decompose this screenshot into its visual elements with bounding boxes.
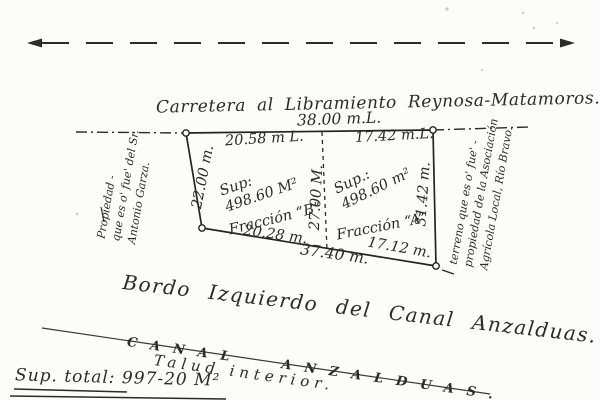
total-surface-label: Sup. total: xyxy=(15,365,116,388)
total-surface-value: 997-20 M² xyxy=(122,368,221,391)
highway-centerline-arrow xyxy=(27,39,575,48)
boundary-tick xyxy=(442,270,454,274)
survey-sketch-sheet: Carretera al Libramiento Reynosa-Matamor… xyxy=(0,0,600,400)
sketch-linework xyxy=(0,0,600,400)
frontage-dimension: 38.00 m.L. xyxy=(297,110,382,131)
